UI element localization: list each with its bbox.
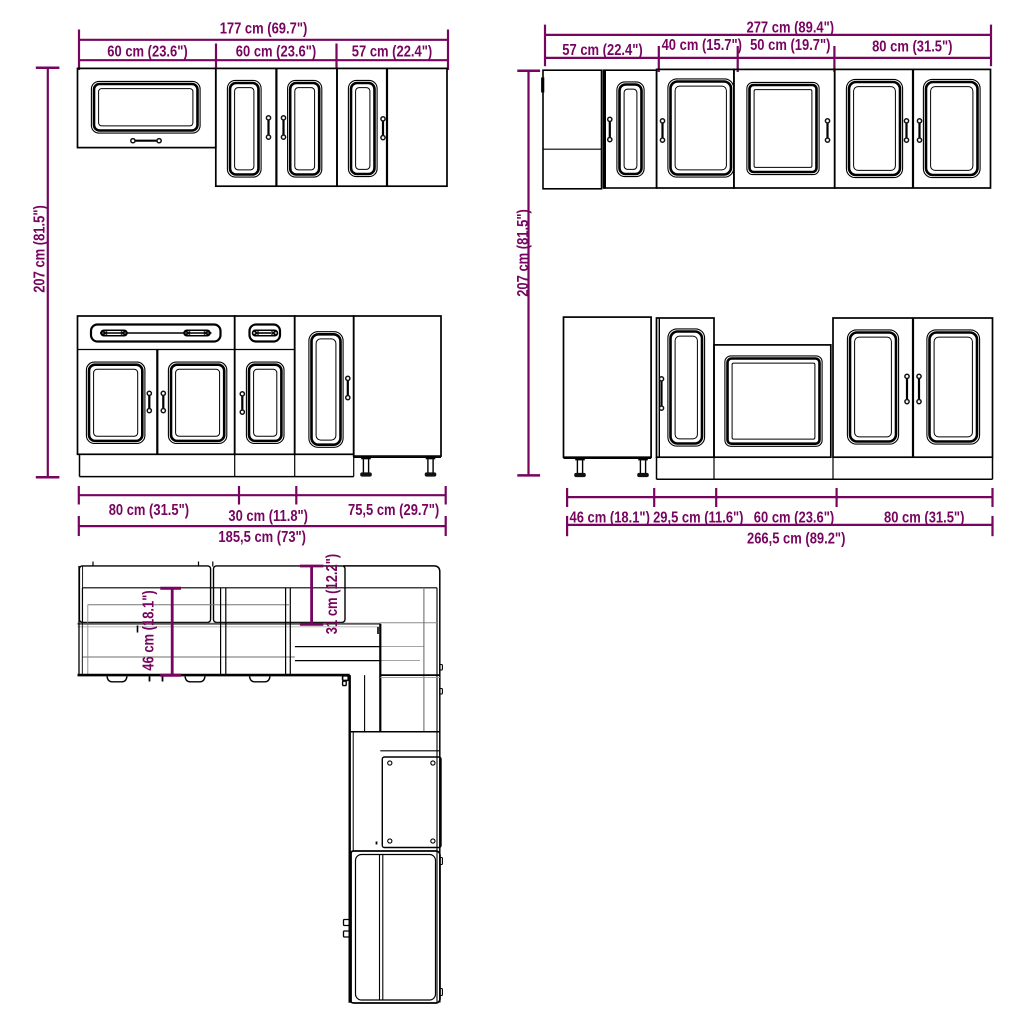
svg-text:57 cm (22.4"): 57 cm (22.4") [562, 42, 642, 59]
svg-text:31 cm (12.2"): 31 cm (12.2") [324, 554, 341, 634]
svg-text:60 cm (23.6"): 60 cm (23.6") [236, 44, 316, 61]
svg-text:185,5 cm (73"): 185,5 cm (73") [218, 529, 306, 546]
svg-text:177 cm (69.7"): 177 cm (69.7") [220, 21, 308, 38]
svg-text:207 cm (81.5"): 207 cm (81.5") [515, 209, 532, 297]
svg-text:46 cm (18.1"): 46 cm (18.1") [141, 590, 158, 670]
svg-text:207 cm (81.5"): 207 cm (81.5") [32, 205, 49, 293]
svg-text:266,5 cm (89.2"): 266,5 cm (89.2") [747, 530, 845, 547]
svg-text:57 cm (22.4"): 57 cm (22.4") [352, 44, 432, 61]
svg-text:80 cm (31.5"): 80 cm (31.5") [109, 502, 189, 519]
svg-text:30 cm (11.8"): 30 cm (11.8") [228, 508, 308, 525]
svg-text:50 cm (19.7"): 50 cm (19.7") [750, 37, 830, 54]
svg-text:60 cm (23.6"): 60 cm (23.6") [107, 44, 187, 61]
svg-text:75,5 cm (29.7"): 75,5 cm (29.7") [348, 502, 439, 519]
svg-text:80 cm (31.5"): 80 cm (31.5") [872, 39, 952, 56]
svg-text:40 cm (15.7"): 40 cm (15.7") [662, 37, 742, 54]
